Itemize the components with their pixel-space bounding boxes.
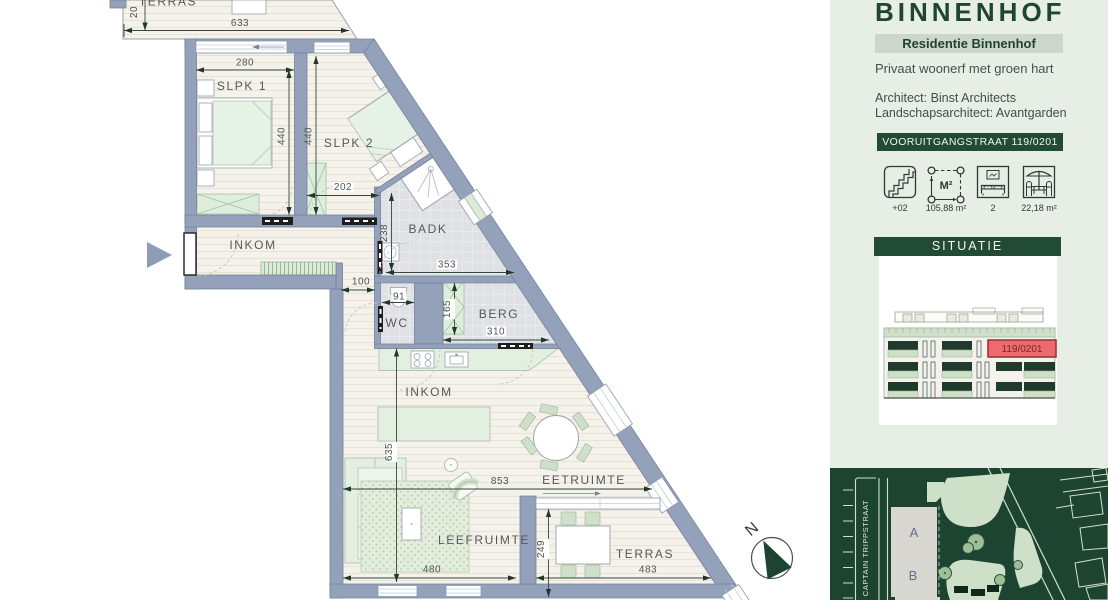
svg-text:238: 238 xyxy=(379,224,390,242)
svg-text:INKOM: INKOM xyxy=(405,385,452,399)
svg-text:LEEFRUIMTE: LEEFRUIMTE xyxy=(438,533,530,547)
svg-text:249: 249 xyxy=(536,540,547,558)
svg-text:440: 440 xyxy=(277,127,288,145)
svg-text:105,88 m²: 105,88 m² xyxy=(926,203,967,213)
svg-text:100: 100 xyxy=(352,277,370,288)
svg-text:2: 2 xyxy=(990,203,995,213)
svg-text:440: 440 xyxy=(304,127,315,145)
svg-text:TERRAS: TERRAS xyxy=(139,0,197,9)
svg-text:165: 165 xyxy=(442,300,453,318)
svg-text:M²: M² xyxy=(940,180,953,192)
svg-text:353: 353 xyxy=(438,260,456,271)
svg-text:633: 633 xyxy=(231,18,249,29)
svg-text:+02: +02 xyxy=(892,203,907,213)
svg-text:853: 853 xyxy=(491,476,509,487)
svg-text:EETRUIMTE: EETRUIMTE xyxy=(542,473,626,487)
svg-text:280: 280 xyxy=(236,58,254,69)
svg-text:WC: WC xyxy=(385,316,408,330)
svg-text:INKOM: INKOM xyxy=(229,238,276,252)
svg-text:B: B xyxy=(909,568,918,583)
svg-text:N: N xyxy=(742,519,762,539)
svg-text:A: A xyxy=(910,525,919,540)
svg-text:91: 91 xyxy=(393,292,405,303)
svg-text:CAPTAIN TRIPPSTRAAT: CAPTAIN TRIPPSTRAAT xyxy=(861,500,870,596)
svg-text:SLPK 2: SLPK 2 xyxy=(324,136,374,150)
svg-text:310: 310 xyxy=(487,327,505,338)
svg-text:BADK: BADK xyxy=(408,222,447,236)
svg-text:480: 480 xyxy=(423,565,441,576)
svg-text:119/0201: 119/0201 xyxy=(1002,344,1043,355)
svg-text:TERRAS: TERRAS xyxy=(616,547,674,561)
svg-text:BERG: BERG xyxy=(479,307,519,321)
svg-text:202: 202 xyxy=(334,182,352,193)
svg-text:SLPK 1: SLPK 1 xyxy=(217,79,267,93)
svg-text:22,18 m²: 22,18 m² xyxy=(1021,203,1057,213)
svg-text:483: 483 xyxy=(639,565,657,576)
svg-text:635: 635 xyxy=(384,443,395,461)
